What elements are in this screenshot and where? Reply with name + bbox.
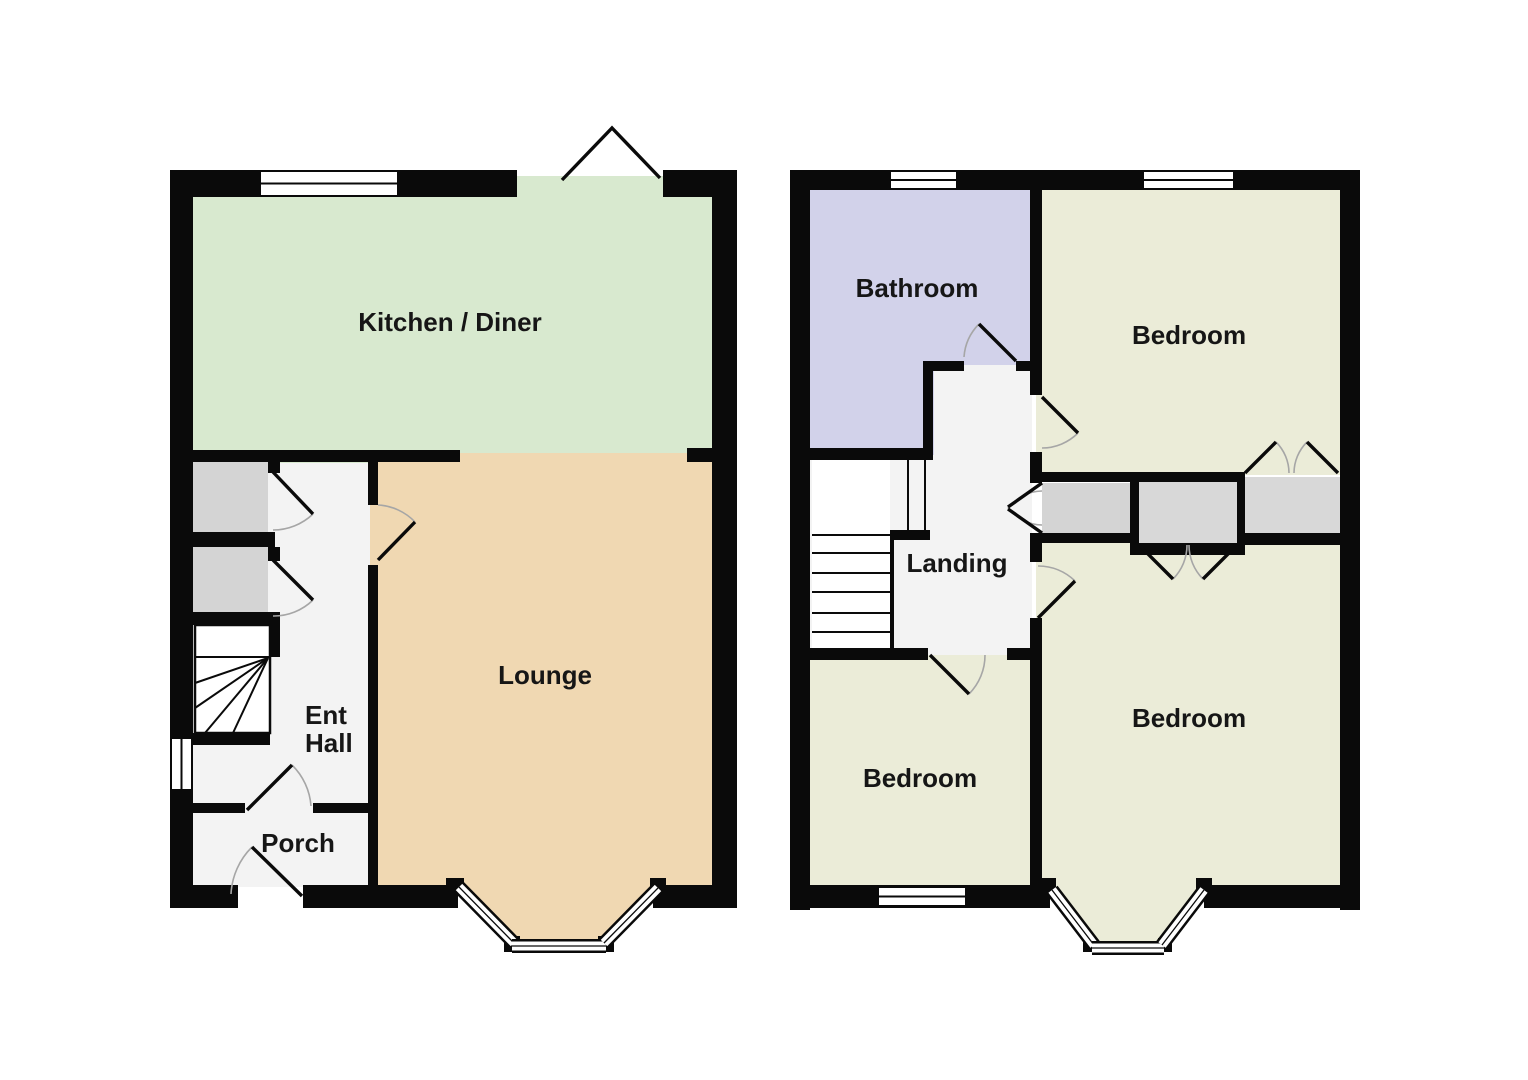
room-label-bathroom: Bathroom <box>856 273 979 303</box>
room-label-bedroom-top: Bedroom <box>1132 320 1246 350</box>
bedroom-bottom-left-window <box>878 887 966 906</box>
kitchen-patio-doors-open <box>562 128 660 180</box>
room-label-ent-hall-line2: Hall <box>305 728 353 758</box>
room-label-ent-hall-line1: Ent <box>305 700 347 730</box>
landing-cupboard-floor <box>1042 483 1130 533</box>
gf-stairs <box>195 625 270 733</box>
room-label-porch: Porch <box>261 828 335 858</box>
room-label-lounge: Lounge <box>498 660 592 690</box>
hall-side-window <box>171 738 192 790</box>
wardrobe-b-floor <box>1245 477 1340 534</box>
bathroom-window <box>890 171 957 189</box>
room-label-bedroom-bottom-right: Bedroom <box>1132 703 1246 733</box>
wardrobe-a-floor <box>1139 478 1237 544</box>
room-label-bedroom-bottom-left: Bedroom <box>863 763 977 793</box>
landing-notch-floor <box>930 365 1032 460</box>
bedroom-top-window <box>1143 171 1234 189</box>
first-floor-plan: Bathroom Bedroom Landing Bedroom Bedroom <box>790 170 1360 952</box>
cupboard-1-floor <box>193 460 268 532</box>
floor-plan-page: Kitchen / Diner Lounge Ent Hall Porch <box>0 0 1528 1080</box>
cupboard-2-floor <box>193 547 268 612</box>
floor-plan-canvas: Kitchen / Diner Lounge Ent Hall Porch <box>0 0 1528 1080</box>
room-label-kitchen-diner: Kitchen / Diner <box>358 307 541 337</box>
room-label-landing: Landing <box>906 548 1007 578</box>
ground-floor-plan: Kitchen / Diner Lounge Ent Hall Porch <box>170 128 737 952</box>
kitchen-window <box>260 171 398 196</box>
